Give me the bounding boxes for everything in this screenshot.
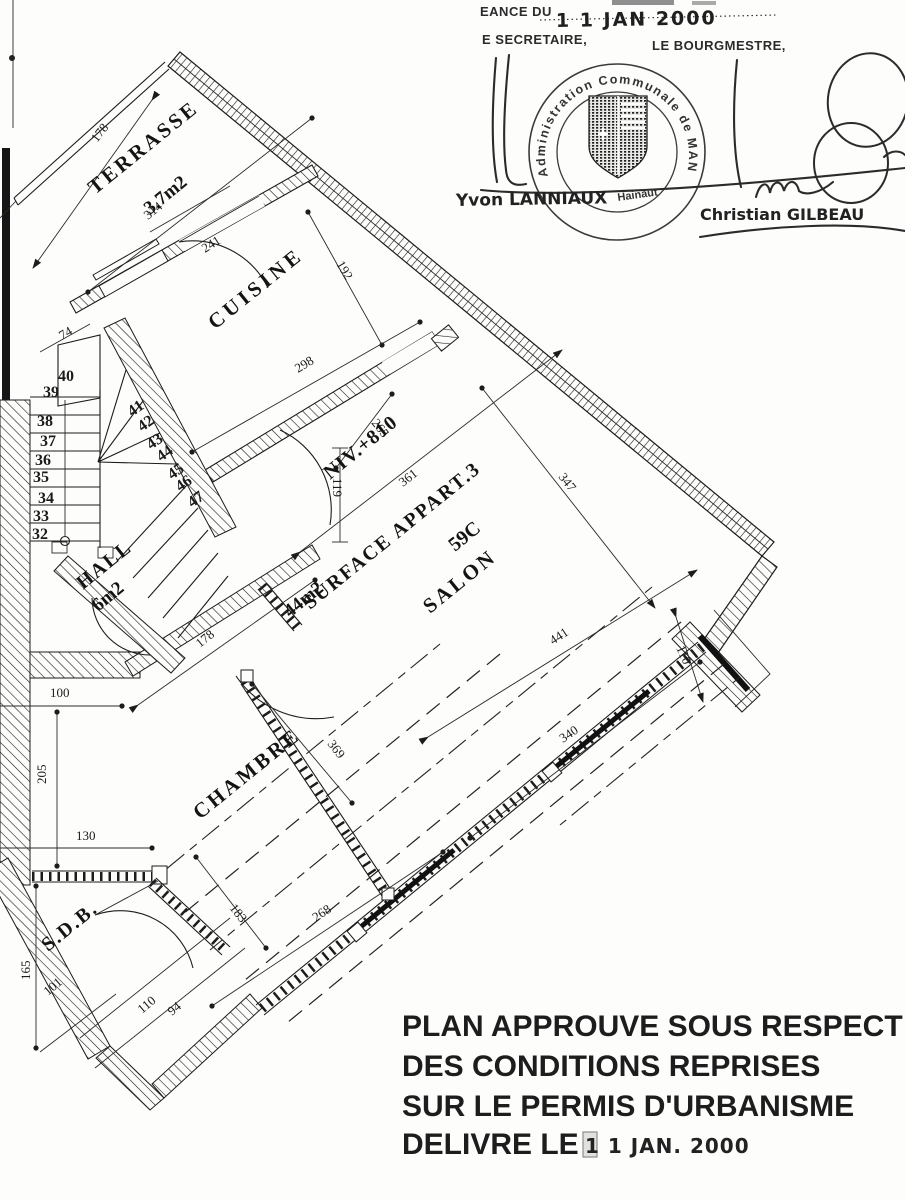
step-39: 39: [43, 384, 59, 401]
signer-left-name: Yvon LANNIAUX: [455, 188, 608, 211]
step-33: 33: [33, 508, 49, 525]
dim-kitchen-length: 298: [292, 353, 316, 376]
level-label: NIV.+810: [319, 411, 402, 484]
step-36: 36: [35, 452, 51, 469]
kitchen-window: [93, 239, 168, 297]
dim-side-upper: 205: [34, 765, 49, 785]
wall-left: [0, 400, 30, 885]
stamp-mayor-label: LE BOURGMESTRE,: [652, 38, 786, 53]
dim-sdb-door-b: 94: [164, 998, 184, 1018]
signer-right-name: Christian GILBEAU: [700, 205, 864, 224]
step-37: 37: [40, 433, 56, 450]
dim-divider: 369: [325, 737, 349, 762]
step-40: 40: [58, 368, 74, 385]
room-label-sdb: S.D.B.: [37, 897, 102, 956]
window-band-salon-chambre: [256, 642, 706, 1015]
room-label-salon: SALON: [418, 544, 501, 618]
dim-kitchen-width: 192: [333, 258, 356, 282]
scanned-floor-plan-page: 178 314 241 192 298 74 265 361 347 178 1…: [0, 0, 905, 1200]
dim-sdb-door: 110: [134, 993, 158, 1017]
step-32: 32: [32, 526, 48, 543]
coat-of-arms: [589, 96, 647, 178]
door-niv: [280, 430, 331, 525]
approval-line-3: SUR LE PERMIS D'URBANISME: [402, 1090, 854, 1123]
step-34: 34: [38, 490, 54, 507]
stamp-secretary-label: E SECRETAIRE,: [482, 32, 587, 47]
dim-chambre-window: 268: [309, 901, 334, 924]
stamp-top-date: 1 1 JAN 2000: [556, 7, 717, 32]
step-38: 38: [37, 413, 53, 430]
dim-salon-diag: 347: [556, 470, 580, 495]
step-35: 35: [33, 469, 49, 486]
dim-salon-window: 340: [556, 722, 581, 745]
dim-side-lower: 130: [76, 828, 96, 843]
approval-stamp: PLAN APPROUVE SOUS RESPECT DES CONDITION…: [402, 1010, 903, 1161]
wall-corner: [700, 556, 777, 656]
wall-tip: [96, 1046, 164, 1110]
room-area-terrasse: 3.7m2: [140, 172, 191, 219]
room-label-chambre: CHAMBRE: [188, 723, 305, 824]
official-stamp: EANCE DU 1 1 JAN 2000 E SECRETAIRE, LE B…: [0, 0, 905, 240]
dim-sdb-side: 165: [18, 961, 33, 981]
divider-salon-chambre: [241, 670, 394, 900]
room-label-cuisine: CUISINE: [203, 243, 308, 334]
dim-salon-length: 441: [546, 624, 571, 647]
approval-date: 1 1 JAN. 2000: [585, 1134, 750, 1158]
balcony-dashed-lines: [153, 587, 740, 1027]
dimension-lines: [0, 100, 703, 1068]
dim-landing: 74: [56, 323, 75, 343]
floor-plan-drawing: 178 314 241 192 298 74 265 361 347 178 1…: [0, 0, 905, 1200]
approval-line-2: DES CONDITIONS REPRISES: [402, 1050, 820, 1083]
dim-hall-opening: 100: [50, 685, 70, 700]
dim-chambre-gap: 183: [227, 901, 251, 926]
approval-line-1: PLAN APPROUVE SOUS RESPECT: [402, 1010, 903, 1043]
approval-line-4: DELIVRE LE: [402, 1128, 579, 1161]
stamp-top-label: EANCE DU: [480, 4, 552, 19]
wall-sdb-outer: [0, 858, 110, 1059]
dim-salon-width: 361: [396, 466, 421, 490]
